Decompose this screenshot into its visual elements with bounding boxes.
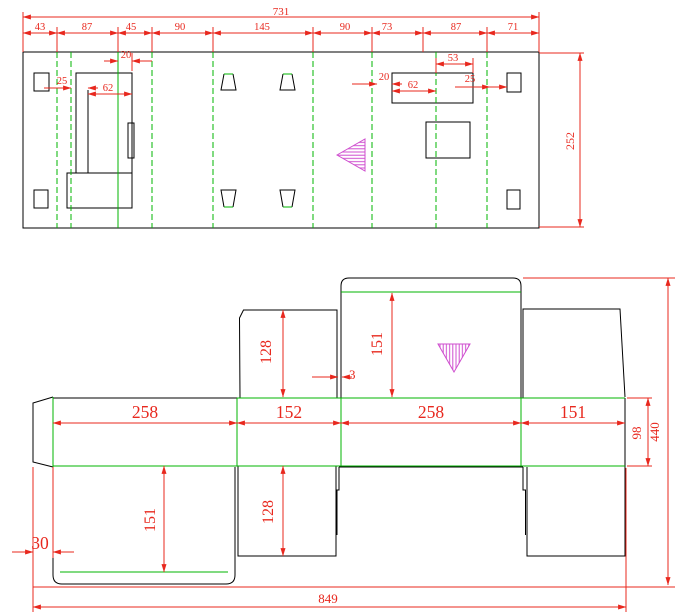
cad-drawing-viewport: 731 43 87 45 90 145 90 73: [0, 0, 686, 616]
dim-top-segment-2: 45: [126, 22, 137, 33]
dim-top-segment-7: 87: [451, 22, 462, 33]
dim-top-segment-1: 87: [82, 22, 93, 33]
dim-total-width: 849: [318, 591, 338, 606]
dim-top-segment-6: 73: [382, 22, 393, 33]
top-view-cut-lines: [23, 52, 539, 228]
dim-left-strip: 30: [31, 533, 49, 553]
dim-flap-top-small: 128: [258, 340, 275, 364]
dim-right-gap: 25: [465, 74, 476, 85]
dim-panel-2: 258: [418, 402, 445, 422]
dieline-drawing: 731 43 87 45 90 145 90 73: [0, 0, 686, 616]
dim-right-slot-width: 62: [408, 80, 419, 91]
dim-flap-bottom-small: 128: [260, 500, 277, 524]
hatch-triangle-down-icon: [438, 344, 470, 372]
dim-flap-bottom-large: 151: [142, 508, 159, 532]
dim-band-height: 98: [629, 427, 644, 440]
bottom-view-dimensions: 258 152 258 151 128 151 3 98 440: [12, 278, 675, 612]
dim-panel-0: 258: [132, 402, 159, 422]
dim-top-total-width: 731: [273, 6, 290, 18]
dim-top-segment-4: 145: [254, 22, 270, 33]
dim-top-segment-3: 90: [175, 22, 186, 33]
top-view-fold-lines: [57, 52, 487, 228]
bottom-view: 258 152 258 151 128 151 3 98 440: [12, 278, 675, 612]
dim-right-slot-offset: 20: [379, 72, 390, 83]
hatch-triangle-left-icon: [337, 139, 365, 171]
bottom-view-cut-lines: [33, 278, 625, 584]
dim-total-height: 440: [647, 422, 662, 442]
dim-top-segment-0: 43: [35, 22, 46, 33]
dim-flap-top-large: 151: [369, 332, 386, 356]
top-view: 731 43 87 45 90 145 90 73: [23, 6, 584, 228]
dim-left-slot-width: 62: [103, 83, 114, 94]
top-view-dimensions: 731 43 87 45 90 145 90 73: [23, 6, 584, 227]
dim-right-slot-top: 53: [448, 53, 459, 64]
dim-left-gap: 25: [57, 76, 68, 87]
dim-top-segment-8: 71: [508, 22, 519, 33]
dim-top-height: 252: [563, 132, 577, 150]
dim-top-segment-5: 90: [340, 22, 351, 33]
bottom-view-fold-lines: [53, 292, 625, 572]
dim-panel-3: 151: [560, 402, 586, 422]
dim-left-slot-offset: 20: [121, 50, 132, 61]
dim-edge-gap: 3: [349, 367, 356, 382]
dim-panel-1: 152: [276, 402, 302, 422]
